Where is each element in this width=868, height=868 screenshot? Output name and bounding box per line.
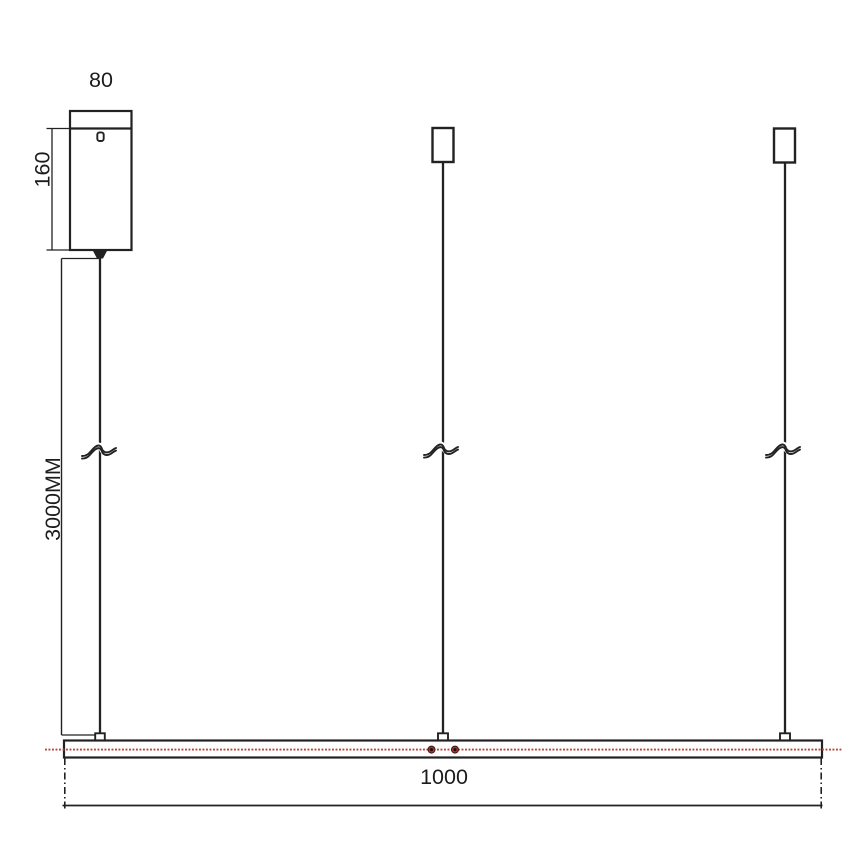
dim-label-bar-length: 1000 (420, 765, 468, 789)
dim-label-canopy-width: 80 (89, 68, 113, 92)
wire-joint-dot-right (452, 746, 459, 753)
pendant-light-dimension-drawing: 80 160 3000MM (0, 0, 868, 868)
dim-label-cable-length: 3000MM (41, 457, 65, 541)
ceiling-mount-middle (433, 128, 454, 162)
wire-joint-dot-core (430, 748, 433, 751)
wire-joint-dot-left (428, 746, 435, 753)
cable-break-symbol-right (766, 445, 800, 458)
keyhole-slot-icon (97, 132, 103, 141)
ceiling-mount-right (774, 129, 795, 163)
drawing-canvas: 80 160 3000MM (0, 0, 868, 868)
dim-label-canopy-height: 160 (31, 152, 55, 188)
wire-joint-dot-core (453, 748, 456, 751)
cable-break-symbol-middle (424, 445, 458, 458)
